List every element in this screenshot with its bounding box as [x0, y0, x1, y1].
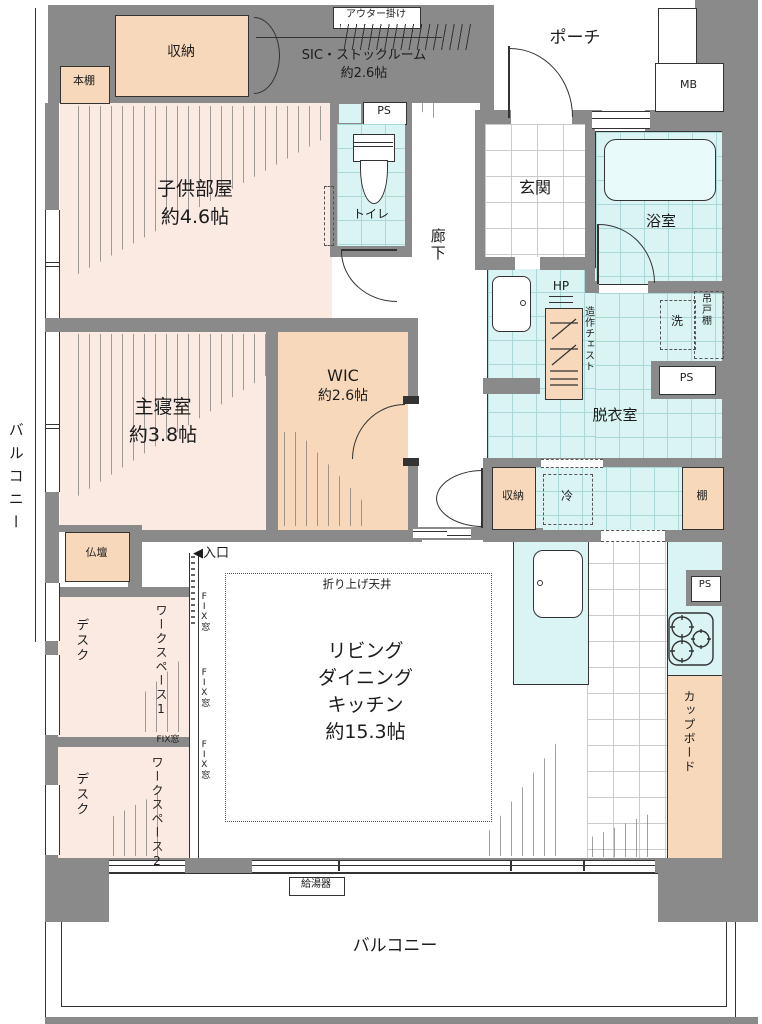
toilet-tank-line: [353, 146, 393, 147]
balcony-bottom-label: バルコニー: [310, 936, 480, 957]
wall-wic-right-b: [408, 458, 418, 530]
ps-label-kitchen: PS: [691, 579, 719, 592]
window-sash-divider: [583, 860, 585, 871]
dressing-door-gap: [515, 258, 540, 269]
pipe-strip-dashed: [324, 186, 334, 246]
sink-dot: [537, 580, 543, 586]
children-size-label: 約4.6帖: [95, 206, 295, 230]
wall-storage-hall-left: [483, 467, 492, 533]
window-mid-line: [252, 865, 437, 866]
chest-label: 造作チェスト: [581, 306, 594, 406]
floor-plan: アウター掛け SIC・ストックルーム 約2.6帖 収納 本棚 子供部屋 約4.6…: [0, 0, 762, 1024]
wall-bottom-right-corner: [658, 858, 758, 922]
wall-altar-right: [128, 525, 142, 587]
hp-label: HP: [544, 279, 578, 294]
chest-ladder-icon: [546, 309, 582, 399]
vanity-handle-dot: [520, 300, 526, 306]
window-bottom-2: [252, 860, 437, 873]
entrance-hall-label: 玄関: [485, 178, 585, 198]
fix-window-dotted: [191, 556, 195, 628]
ldk-sliding-door-line: [413, 531, 447, 532]
wall-mb-bottom: [645, 110, 758, 131]
window-sash-tick: [45, 428, 59, 429]
window-sash-tick: [45, 424, 59, 425]
window-left-2: [45, 332, 60, 492]
ldk-size: 約15.3帖: [283, 719, 448, 746]
balcony-left-label: バルコニー: [6, 422, 25, 607]
window-bottom-3: [437, 860, 655, 873]
bathtub: [604, 139, 716, 201]
fix-window-label-1: FIX窓: [198, 592, 209, 648]
wall-stub-wic-door-bottom: [403, 458, 419, 466]
master-bedroom-label: 主寝室: [63, 396, 263, 420]
toilet-door-arc: [341, 251, 397, 302]
fix-window-label-3: FIX窓: [198, 740, 209, 796]
kitchen-opening-dashed: [601, 530, 665, 542]
hp-symbol-line: [549, 302, 573, 303]
ps-label-dressing: PS: [659, 371, 714, 385]
wall-wic-right-a: [408, 318, 418, 404]
altar-label: 仏壇: [65, 546, 128, 560]
window-bottom-1: [109, 860, 185, 873]
desk1-label: デスク: [72, 618, 88, 692]
toilet-tank: [353, 134, 395, 162]
left-balcony-edge-line: [35, 8, 36, 642]
porch-step-line: [592, 118, 650, 119]
washer-label: 洗: [660, 314, 694, 329]
fridge-opening-dashed: [541, 459, 603, 468]
storage-hall-label: 収納: [492, 489, 534, 503]
hall-storage-door-leaf: [481, 468, 483, 528]
ps-label-toilet: PS: [363, 104, 405, 118]
ldk-sliding-door-line: [447, 535, 471, 536]
ldk-line3: キッチン: [283, 692, 448, 719]
window-mid-line: [437, 865, 655, 866]
wall-left-a: [45, 103, 59, 210]
hatch-ldk-left: [489, 742, 557, 856]
balcony-bottom-slab: [45, 1017, 758, 1024]
bathroom-label: 浴室: [618, 212, 704, 231]
wall-top-right-corner: [695, 0, 758, 63]
workspace2-label: ワークスペース2: [116, 756, 164, 860]
wall-genkan-left: [475, 110, 485, 270]
dressing-room-label: 脱衣室: [555, 406, 675, 425]
toilet-tank-line: [353, 142, 393, 143]
kitchen-floor-area: [587, 537, 667, 858]
wall-desk-top: [45, 587, 192, 597]
porch-nook: [658, 8, 697, 64]
master-size-label: 約3.8帖: [63, 424, 263, 448]
ldk-line2: ダイニング: [283, 665, 448, 692]
children-room-label: 子供部屋: [95, 178, 295, 202]
cupboard-label: カップボード: [681, 690, 696, 845]
outer-hanger-label: アウター掛け: [333, 9, 419, 22]
window-mid-line: [109, 865, 185, 866]
hall-storage-door-arc-2: [436, 498, 483, 527]
wall-left-b: [45, 492, 59, 584]
fix-window-label-h: FIX窓: [146, 735, 190, 746]
wall-bedroom-bottom: [135, 530, 422, 542]
window-sash-tick: [45, 262, 59, 263]
window-sash-divider: [510, 860, 512, 871]
window-sash-divider: [338, 860, 340, 871]
hp-symbol-line: [549, 296, 573, 297]
toilet-label: トイレ: [339, 207, 403, 222]
ldk-label-block: リビング ダイニング キッチン 約15.3帖: [283, 638, 448, 746]
wall-porch-left: [480, 5, 494, 112]
hall-storage-door-arc-1: [436, 470, 483, 499]
raised-ceiling-label: 折り上げ天井: [282, 577, 432, 591]
wall-bedroom-wic: [266, 330, 278, 530]
wall-bath-left: [585, 124, 595, 283]
wall-genkan-bottom-r: [540, 257, 588, 270]
sic-name-label: SIC・ストックルーム: [254, 48, 474, 64]
window-left-4: [45, 655, 60, 735]
window-left-5: [45, 785, 60, 855]
shelf-label: 棚: [682, 489, 722, 503]
wall-genkan-bottom-l: [475, 257, 515, 270]
wall-genkan-top-l: [483, 110, 511, 124]
wic-label: WIC: [280, 366, 406, 386]
fix-window-label-2: FIX窓: [198, 668, 209, 724]
wall-floor-divider: [45, 318, 415, 332]
window-sash-tick: [45, 266, 59, 267]
wall-right-outer: [722, 131, 758, 858]
entry-marker-label: ◀入口: [193, 546, 263, 562]
corridor-label: 廊下: [428, 228, 447, 298]
desk2-label: デスク: [72, 772, 88, 846]
window-left-3: [45, 583, 60, 641]
workspace1-label: ワークスペース1: [120, 604, 168, 704]
mb-label: MB: [655, 78, 722, 92]
hanger-hooks-icon: [340, 24, 472, 50]
stove-icon: [668, 612, 714, 666]
porch-step: [592, 111, 650, 129]
storage-top-label: 収納: [115, 44, 247, 62]
water-heater-label: 給湯器: [289, 879, 343, 892]
built-in-chest-box: [545, 308, 583, 400]
toilet-ps-cyan: [339, 104, 361, 123]
porch-label: ポーチ: [520, 28, 630, 49]
hanging-cupboard-label: 吊戸棚: [698, 293, 711, 357]
fridge-label: 冷: [551, 489, 583, 504]
sic-size-label: 約2.6帖: [254, 66, 474, 82]
wall-vanity-bottom: [483, 378, 540, 394]
wic-size-label: 約2.6帖: [280, 388, 406, 406]
bookshelf-label: 本棚: [60, 74, 108, 88]
window-left-1: [45, 210, 60, 318]
ldk-line1: リビング: [283, 638, 448, 665]
